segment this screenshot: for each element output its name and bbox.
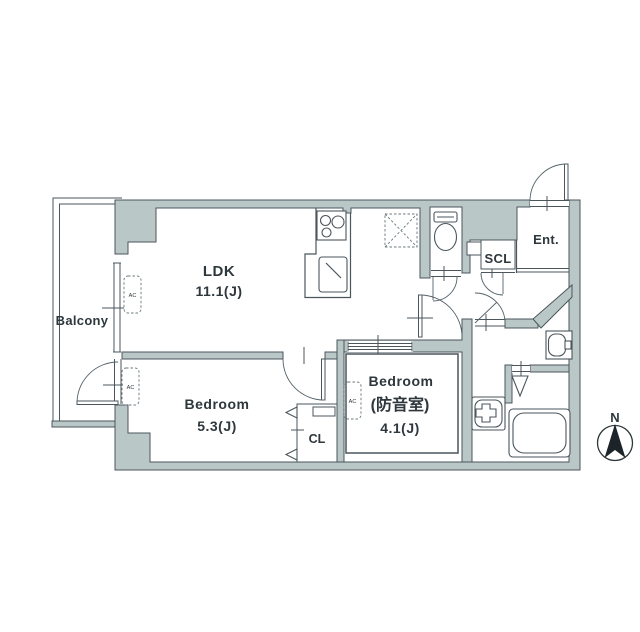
- soundproof-bedroom-subtitle: (防音室): [371, 395, 430, 414]
- soundproof-bedroom-area-label: 4.1(J): [380, 420, 420, 436]
- diagonal-wall: [533, 285, 572, 328]
- ac-label: AC: [349, 399, 357, 405]
- pipe-space-box: [467, 242, 481, 255]
- door-swing-arc: [283, 359, 325, 400]
- faucet: [565, 341, 571, 349]
- door-swing-arc: [420, 295, 462, 337]
- soundproof-bedroom-label: Bedroom: [369, 373, 434, 389]
- balcony-label: Balcony: [56, 313, 109, 328]
- entrance-door: [530, 164, 568, 201]
- bath-folding-door: [512, 361, 530, 396]
- ldk-area-label: 11.1(J): [195, 283, 242, 299]
- stove: [317, 211, 346, 240]
- ac-unit-ldk: AC: [124, 276, 141, 313]
- balcony-end-wall: [52, 421, 115, 427]
- kitchen-sink: [319, 257, 347, 292]
- ac-label: AC: [127, 385, 135, 391]
- bedroom-balcony-doorway: [103, 359, 123, 404]
- floor-plan: AC AC AC Balcony LDK 11.1(J) Bedroom 5.3…: [0, 0, 640, 632]
- compass: N: [598, 410, 633, 461]
- entrance-label: Ent.: [533, 232, 559, 247]
- toilet-door: [431, 266, 461, 301]
- washbasin: [546, 331, 572, 359]
- bedroom-door: [283, 347, 325, 400]
- folding-door-panel: [286, 407, 297, 418]
- bedroom-label: Bedroom: [185, 396, 250, 412]
- toilet: [434, 212, 457, 251]
- ac-label: AC: [129, 293, 137, 299]
- balcony-door: [77, 362, 118, 405]
- bedroom-wall-east: [325, 352, 338, 359]
- ldk-label: LDK: [203, 263, 235, 280]
- washing-machine-pan: [472, 397, 505, 430]
- toilet-bowl: [435, 224, 457, 251]
- door-leaf: [565, 164, 569, 200]
- entry-step-edge: [517, 269, 569, 273]
- washroom-door: [475, 293, 505, 331]
- folding-door-panel: [512, 376, 528, 396]
- soundproof-wall-left: [337, 340, 344, 462]
- washroom-wall-top: [505, 319, 538, 328]
- bathroom-wall-top: [530, 365, 569, 372]
- bedroom-wall-west: [122, 352, 283, 359]
- floor-plan-drawing: AC AC AC Balcony LDK 11.1(J) Bedroom 5.3…: [0, 0, 640, 632]
- refrigerator-space: [385, 214, 417, 247]
- closet-shelf: [313, 407, 335, 416]
- door-leaf: [419, 295, 423, 337]
- washroom: [472, 331, 572, 457]
- bathroom-wall-left: [505, 365, 512, 403]
- door-leaf: [77, 401, 118, 405]
- door-swing-arc: [433, 277, 457, 301]
- ldk-balcony-window: [102, 263, 124, 352]
- entrance-threshold: [530, 196, 569, 211]
- bathtub: [509, 409, 570, 457]
- door-leaf: [322, 359, 326, 400]
- closet-label: CL: [309, 432, 326, 446]
- door-swing-arc: [530, 164, 566, 201]
- door-swing-arc: [77, 362, 118, 403]
- folding-door-panel: [286, 449, 297, 460]
- north-arrow-icon: [605, 424, 626, 458]
- bedroom-area-label: 5.3(J): [197, 418, 237, 434]
- north-label: N: [610, 410, 619, 425]
- shoe-closet-label: SCL: [485, 251, 512, 266]
- kitchen: [305, 208, 417, 298]
- ac-unit-bedroom: AC: [122, 368, 139, 405]
